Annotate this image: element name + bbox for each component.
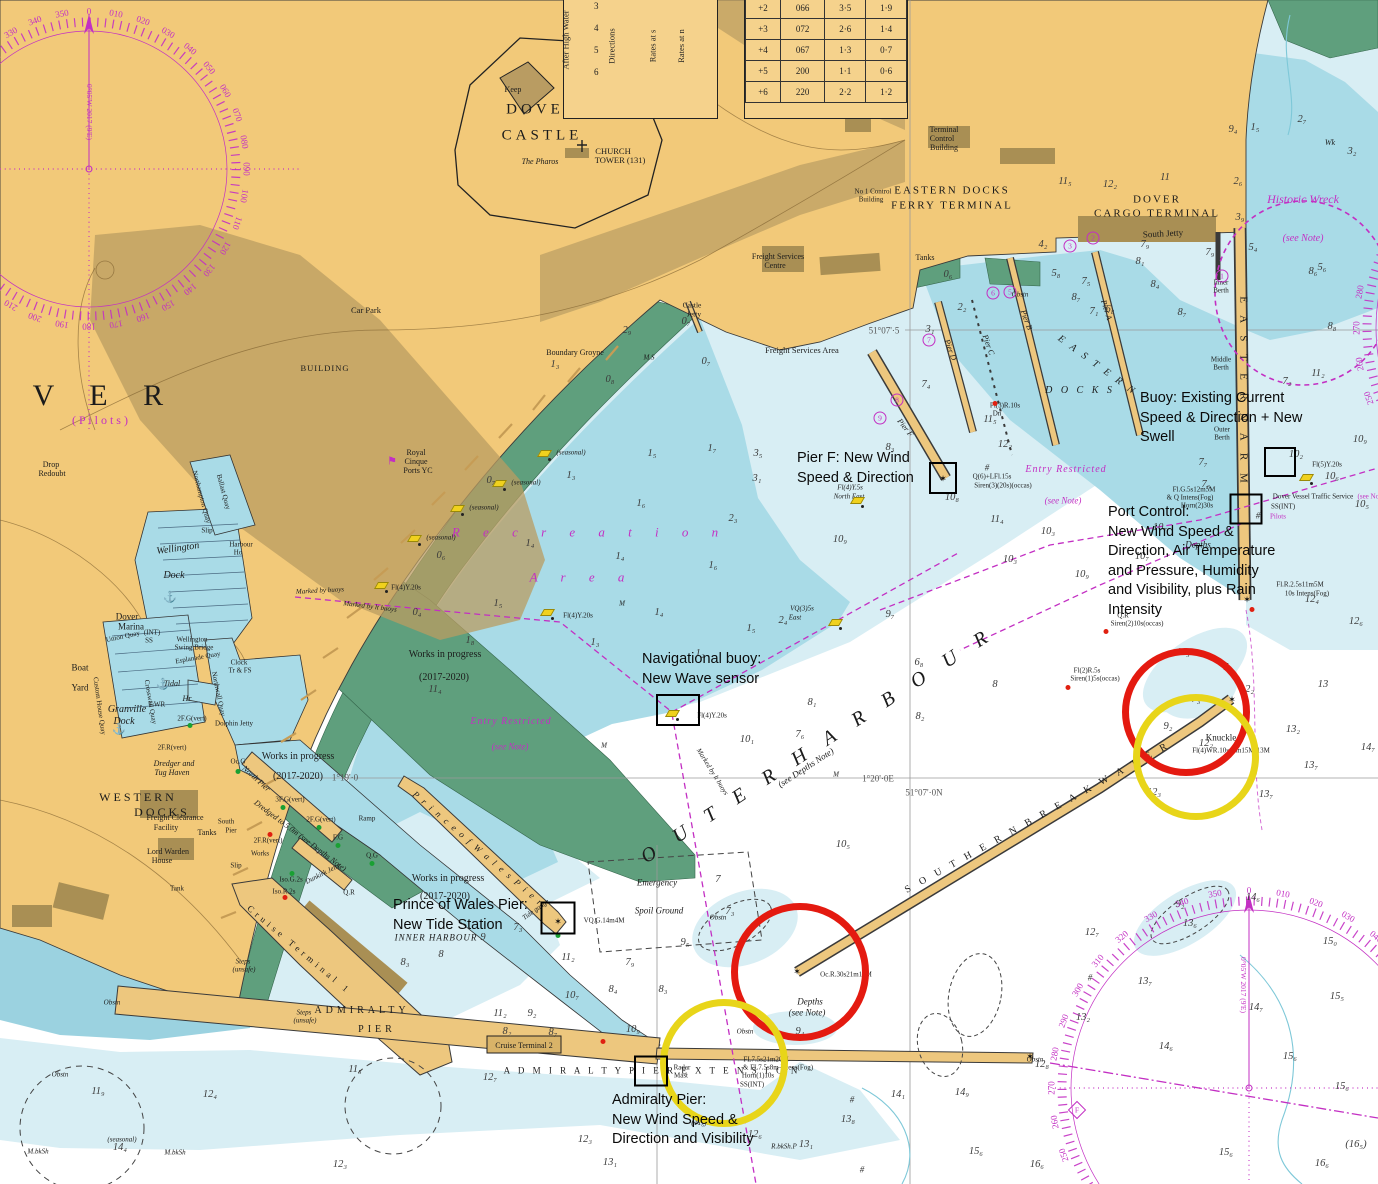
target-box-admiralty-target bbox=[634, 1056, 668, 1087]
annotation-line: Buoy: Existing Current bbox=[1140, 389, 1302, 409]
annotation-line: Speed & Direction + New bbox=[1140, 409, 1302, 429]
tide-table-cell: 067 bbox=[780, 40, 824, 61]
annotation-tide-station: Prince of Wales Pier:New Tide Station bbox=[393, 896, 528, 935]
tide-table-cell: 2·2 bbox=[825, 82, 866, 103]
tide-table-hour: 3 bbox=[594, 1, 599, 23]
tide-table-cell: 2·6 bbox=[825, 19, 866, 40]
target-box-tide-station-target bbox=[541, 902, 576, 935]
tide-table-cell: 1·2 bbox=[866, 82, 907, 103]
tide-table-row: +52001·10·6 bbox=[746, 61, 907, 82]
tide-table-cell: 1·1 bbox=[825, 61, 866, 82]
tide-table-cell: 220 bbox=[780, 82, 824, 103]
annotation-line: Intensity bbox=[1108, 601, 1275, 621]
tide-table-hours: 3456 bbox=[594, 1, 599, 89]
tide-table-rates-grid: +20663·51·9+30722·61·4+40671·30·7+52001·… bbox=[745, 0, 907, 103]
tide-table-left: After High Water 3456 Directions Rates a… bbox=[563, 0, 718, 119]
annotation-line: Speed & Direction bbox=[797, 469, 914, 489]
annotation-line: Direction and Visibility bbox=[612, 1130, 754, 1150]
church-building bbox=[565, 148, 589, 158]
tide-table-rates: +20663·51·9+30722·61·4+40671·30·7+52001·… bbox=[744, 0, 908, 119]
target-box-wave-buoy-target bbox=[656, 694, 700, 726]
annotation-line: Admiralty Pier: bbox=[612, 1091, 754, 1111]
tide-table-row: +30722·61·4 bbox=[746, 19, 907, 40]
target-box-swell-buoy-target bbox=[1264, 447, 1296, 477]
highlight-circle-yellow-knuckle bbox=[1133, 694, 1259, 820]
annotation-line: New Tide Station bbox=[393, 916, 528, 936]
annotation-line: Port Control: bbox=[1108, 503, 1275, 523]
tide-table-row: +62202·21·2 bbox=[746, 82, 907, 103]
tide-table-cell: 1·3 bbox=[825, 40, 866, 61]
annotation-line: Swell bbox=[1140, 428, 1302, 448]
annotation-line: New Wind Speed & bbox=[612, 1111, 754, 1131]
annotation-pier-f: Pier F: New WindSpeed & Direction bbox=[797, 449, 914, 488]
annotation-line: New Wave sensor bbox=[642, 670, 761, 690]
annotation-line: New Wind Speed & bbox=[1108, 523, 1275, 543]
tide-table-cell: +3 bbox=[746, 19, 781, 40]
tide-table-left-header: After High Water bbox=[561, 10, 571, 69]
tide-table-cell: 1·4 bbox=[866, 19, 907, 40]
annotation-line: Pier F: New Wind bbox=[797, 449, 914, 469]
tide-table-cell: +5 bbox=[746, 61, 781, 82]
tide-table-hour: 6 bbox=[594, 67, 599, 89]
annotation-line: and Pressure, Humidity bbox=[1108, 562, 1275, 582]
annotation-line: Navigational buoy: bbox=[642, 650, 761, 670]
tide-table-cell: 0·6 bbox=[866, 61, 907, 82]
cruise-terminal-2-building bbox=[487, 1036, 561, 1053]
annotation-swell-buoy: Buoy: Existing CurrentSpeed & Direction … bbox=[1140, 389, 1302, 448]
nautical-chart-dover: After High Water 3456 Directions Rates a… bbox=[0, 0, 1378, 1184]
annotation-line: Direction, Air Temperature bbox=[1108, 542, 1275, 562]
tide-table-col-header: Rates at n bbox=[676, 29, 686, 63]
tide-table-col-header: Directions bbox=[607, 28, 617, 63]
target-box-pier-f-target bbox=[929, 462, 957, 494]
annotation-line: and Visibility, plus Rain bbox=[1108, 581, 1275, 601]
tide-table-cell: +6 bbox=[746, 82, 781, 103]
tide-table-hour: 5 bbox=[594, 45, 599, 67]
annotation-wave-buoy: Navigational buoy:New Wave sensor bbox=[642, 650, 761, 689]
tide-table-cell: 3·5 bbox=[825, 0, 866, 19]
tide-table-row: +20663·51·9 bbox=[746, 0, 907, 19]
water-medium-ne bbox=[1246, 52, 1378, 340]
tide-table-cell: 0·7 bbox=[866, 40, 907, 61]
annotation-admiralty-pier: Admiralty Pier:New Wind Speed &Direction… bbox=[612, 1091, 754, 1150]
tide-table-cell: +4 bbox=[746, 40, 781, 61]
tide-table-row: +40671·30·7 bbox=[746, 40, 907, 61]
tide-table-cell: +2 bbox=[746, 0, 781, 19]
tide-table-cell: 200 bbox=[780, 61, 824, 82]
annotation-port-control: Port Control:New Wind Speed &Direction, … bbox=[1108, 503, 1275, 620]
tide-table-cell: 1·9 bbox=[866, 0, 907, 19]
annotation-line: Prince of Wales Pier: bbox=[393, 896, 528, 916]
tide-table-col-header: Rates at s bbox=[647, 30, 657, 63]
tide-table-cell: 066 bbox=[780, 0, 824, 19]
tide-table-hour: 4 bbox=[594, 23, 599, 45]
tide-table-cell: 072 bbox=[780, 19, 824, 40]
